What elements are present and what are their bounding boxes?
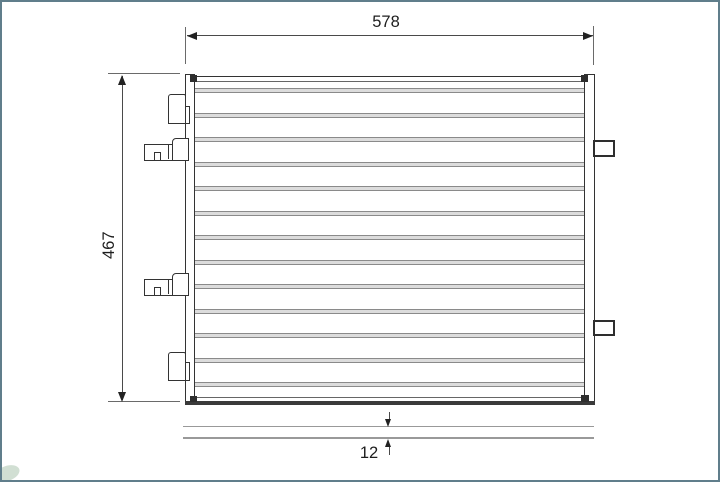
width-dimension-label: 578 — [358, 14, 414, 31]
core-corner-cap-top-left — [190, 75, 197, 82]
width-arrow-right-icon — [583, 32, 593, 40]
height-arrow-down-icon — [118, 392, 126, 402]
fitting1-block — [168, 94, 186, 124]
fitting2-block — [172, 138, 190, 161]
fitting3-notch — [154, 287, 162, 295]
fitting2-flange-line — [168, 145, 169, 159]
core-tube — [195, 162, 585, 167]
core-tube — [195, 113, 585, 118]
core-tube — [195, 137, 585, 142]
core-bottom-thin-line — [195, 397, 585, 398]
fitting4-block — [168, 352, 186, 381]
watermark-logo — [0, 462, 22, 482]
depth-arrow-down-icon — [385, 419, 391, 427]
core-tube — [195, 358, 585, 363]
fitting3-block — [172, 273, 190, 296]
diagram-canvas: 578 467 12 — [0, 0, 720, 482]
width-witness-line-right — [593, 26, 594, 65]
right-bracket-upper — [593, 140, 615, 157]
core-tube — [195, 309, 585, 314]
width-dimension-line — [187, 35, 593, 36]
core-tube — [195, 333, 585, 338]
core-tube — [195, 260, 585, 265]
fitting2-notch — [154, 152, 162, 160]
core-tube — [195, 88, 585, 93]
core-tube — [195, 186, 585, 191]
height-arrow-up-icon — [118, 75, 126, 85]
core-corner-cap-bottom-left — [190, 396, 197, 403]
core-tube — [195, 211, 585, 216]
right-tank-bar — [584, 74, 595, 402]
width-arrow-left-icon — [187, 32, 197, 40]
core-bottom-beam — [185, 401, 595, 405]
core-corner-cap-bottom-right — [581, 395, 589, 403]
depth-dimension-label: 12 — [352, 445, 386, 462]
core-tube — [195, 284, 585, 289]
core-top-beam — [195, 76, 585, 83]
depth-leader-lower — [389, 447, 390, 455]
core-tube — [195, 382, 585, 387]
core-corner-cap-top-right — [581, 75, 588, 82]
height-dimension-line — [122, 76, 123, 400]
right-bracket-lower — [593, 320, 615, 336]
height-dimension-label: 467 — [101, 225, 118, 265]
fitting3-flange-line — [168, 280, 169, 294]
core-tube — [195, 235, 585, 240]
